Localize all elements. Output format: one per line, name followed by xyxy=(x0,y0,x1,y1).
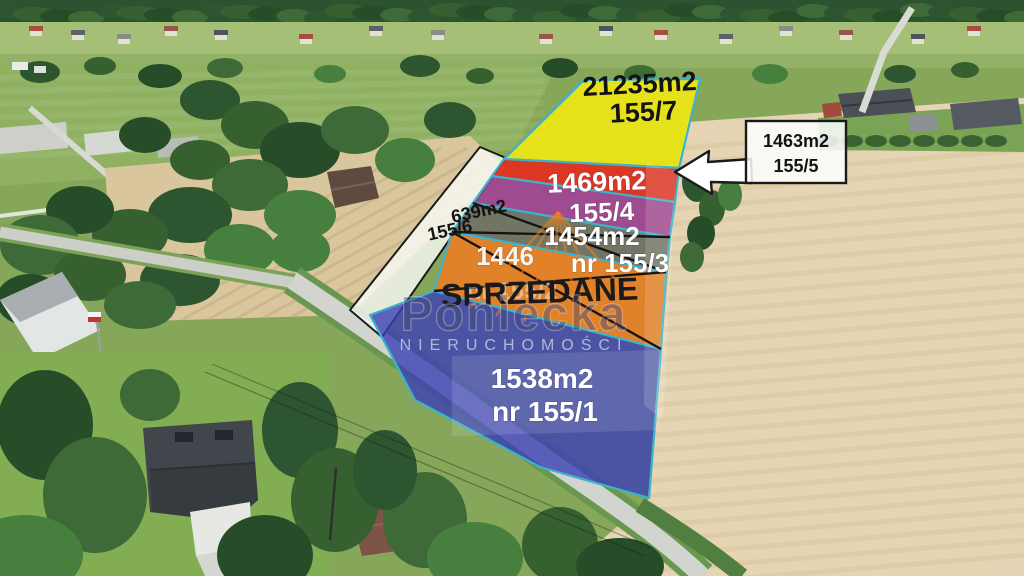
callout-number-label: 155/5 xyxy=(773,156,818,176)
callout-area-label: 1463m2 xyxy=(763,131,829,151)
distant-fields-band xyxy=(0,22,1024,56)
parcel-155-1-number-label: nr 155/1 xyxy=(492,396,598,427)
parcel-155-3-area-label: 1454m2 xyxy=(544,221,639,251)
parcel-155-4-area-label: 1469m2 xyxy=(547,165,647,198)
watermark-subtitle: NIERUCHOMOŚCI xyxy=(400,335,629,354)
parcel-155-1-area-label: 1538m2 xyxy=(491,363,594,394)
aerial-photo-listing: 21235m2 155/7 1469m2 155/4 1454m2 nr 155… xyxy=(0,0,1024,576)
watermark-brand: Poniecka xyxy=(401,288,628,341)
parcel-155-2-area-label: 1446 xyxy=(476,241,534,271)
parcel-155-7-number-label: 155/7 xyxy=(609,95,678,128)
scene-canvas: 21235m2 155/7 1469m2 155/4 1454m2 nr 155… xyxy=(0,0,1024,576)
